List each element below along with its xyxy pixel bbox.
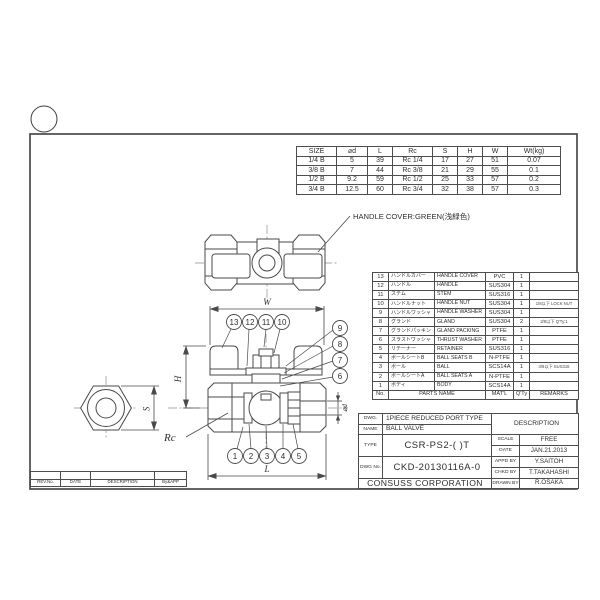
cell: 0.3 [508, 185, 561, 195]
cell: 13 [373, 273, 389, 282]
gland [252, 374, 280, 383]
cell: スラストワッシャ [389, 336, 435, 345]
cell: 17 [433, 156, 458, 166]
size-table-header: SIZE ⌀d L Rc S H W Wt(kg) [297, 147, 561, 157]
header-wt: Wt(kg) [508, 147, 561, 157]
balloon-3: 3 [260, 449, 275, 464]
cell: 3/8 B [297, 166, 337, 176]
cell: HANDLE [435, 282, 486, 291]
dwg-label: DWG. [359, 414, 383, 425]
table-row: 11ステムSTEMSUS3161 [373, 291, 579, 300]
header-rev-description: DESCRIPTION [91, 479, 155, 487]
cell: 32 [433, 185, 458, 195]
table-row: 5リテーナーRETAINERSUS3161 [373, 345, 579, 354]
cell: 0.2 [508, 175, 561, 185]
cell: 1 [514, 291, 530, 300]
cell: 59 [368, 175, 393, 185]
description-value: 1PIECE REDUCED PORT TYPE [383, 414, 492, 425]
scale-value: FREE [520, 435, 579, 446]
cell: BALL [435, 363, 486, 372]
table-row: 10ハンドルナットHANDLE NUTSUS30411/8以下 LOCK NUT [373, 300, 579, 309]
header-no: No. [373, 390, 389, 399]
cell: PTFE [486, 327, 514, 336]
cell: 1 [514, 327, 530, 336]
cell: STEM [435, 291, 486, 300]
cell: BODY [435, 381, 486, 390]
header-l: L [368, 147, 393, 157]
cell: 60 [368, 185, 393, 195]
dwg-no-value: CKD-20130116A-0 [383, 457, 492, 479]
cell: 0.1 [508, 166, 561, 176]
cell: 1 [514, 363, 530, 372]
balloon-12: 12 [243, 315, 258, 330]
ball-seat-b [280, 393, 288, 423]
balloon-11: 11 [259, 315, 274, 330]
svg-text:6: 6 [338, 372, 343, 381]
cell: 1 [514, 300, 530, 309]
description-label: DESCRIPTION [492, 414, 579, 435]
valve-front-view [168, 334, 348, 452]
cell: BALL SEATS B [435, 354, 486, 363]
drawn-by-value: R.OSAKA [520, 479, 579, 489]
dim-label-d: ⌀d [341, 404, 349, 412]
table-row: 8グランドGLANDSUS30423/8以下 Q'Ty:1 [373, 318, 579, 327]
date-value: JAN.21.2013 [520, 446, 579, 457]
cell: 1 [514, 336, 530, 345]
cell: 0.07 [508, 156, 561, 166]
header-h: H [458, 147, 483, 157]
cell: ボールシートB [389, 354, 435, 363]
cell: グランドパッキン [389, 327, 435, 336]
cell: SCS14A [486, 363, 514, 372]
table-row: TYPE CSR-PS2-( )T SCALE FREE [359, 435, 579, 446]
cell [530, 273, 579, 282]
cell: HANDLE COVER [435, 273, 486, 282]
cell: 1 [373, 381, 389, 390]
registration-circle [31, 106, 57, 132]
svg-text:5: 5 [297, 452, 302, 461]
cell: 3/4 B [297, 185, 337, 195]
cell [530, 372, 579, 381]
cell: RETAINER [435, 345, 486, 354]
table-row: 1/4 B539Rc 1/41727510.07 [297, 156, 561, 166]
svg-text:11: 11 [262, 318, 271, 327]
header-qty: Q'Ty [514, 390, 530, 399]
balloon-9: 9 [333, 321, 348, 336]
cell [530, 381, 579, 390]
cell: SUS316 [486, 345, 514, 354]
cell: グランド [389, 318, 435, 327]
handle-nut [253, 355, 279, 368]
dim-label-l: L [263, 464, 269, 474]
cell: 1/4 B [297, 156, 337, 166]
balloon-1: 1 [228, 449, 243, 464]
table-row: 9ハンドルワッシャHANDLE WASHERSUS3041 [373, 309, 579, 318]
table-row: 3ボールBALLSCS14A13/8以下 SUS316 [373, 363, 579, 372]
svg-text:10: 10 [278, 318, 287, 327]
cell: 5 [373, 345, 389, 354]
cell: 39 [368, 156, 393, 166]
cell: ボディ [389, 381, 435, 390]
cell: ハンドルワッシャ [389, 309, 435, 318]
cell [530, 282, 579, 291]
header-rev-date: DATE [61, 479, 91, 487]
cell: Rc 3/4 [393, 185, 433, 195]
header-parts-name: PARTS NAME [389, 390, 486, 399]
cell: 7 [373, 327, 389, 336]
table-row: 12ハンドルHANDLESUS3041 [373, 282, 579, 291]
cell: 1/8以下 LOCK NUT [530, 300, 579, 309]
cell [31, 472, 61, 480]
cell: SUS304 [486, 282, 514, 291]
title-block: DWG. 1PIECE REDUCED PORT TYPE DESCRIPTIO… [358, 413, 579, 489]
table-row: CONSUSS CORPORATION DRAWN BY R.OSAKA [359, 479, 579, 489]
table-row: DWG. 1PIECE REDUCED PORT TYPE DESCRIPTIO… [359, 414, 579, 425]
cell: 1 [514, 345, 530, 354]
cell [91, 472, 155, 480]
cell: 4 [373, 354, 389, 363]
cell: 1 [514, 354, 530, 363]
cell [530, 345, 579, 354]
cell: 6 [373, 336, 389, 345]
cell: 1 [514, 381, 530, 390]
cell: ハンドルカバー [389, 273, 435, 282]
date-label: DATE [492, 446, 520, 457]
type-value: CSR-PS2-( )T [383, 435, 492, 457]
balloon-5: 5 [292, 449, 307, 464]
cell: 51 [483, 156, 508, 166]
header-remarks: REMARKS [530, 390, 579, 399]
svg-text:4: 4 [281, 452, 286, 461]
parts-list-header-row: No. PARTS NAME MAT'L Q'Ty REMARKS [373, 390, 579, 399]
cell: THRUST WASHER [435, 336, 486, 345]
svg-text:2: 2 [249, 452, 254, 461]
balloon-4: 4 [276, 449, 291, 464]
chkd-by-value: T.TAKAHASHI [520, 468, 579, 479]
cell: 1 [514, 282, 530, 291]
header-rev-by: By&APP [155, 479, 187, 487]
cell: 7 [337, 166, 368, 176]
cell [530, 354, 579, 363]
cell: HANDLE WASHER [435, 309, 486, 318]
cell: 12.5 [337, 185, 368, 195]
cell: 3 [373, 363, 389, 372]
cell [61, 472, 91, 480]
cell: SCS14A [486, 381, 514, 390]
cell: HANDLE NUT [435, 300, 486, 309]
header-matl: MAT'L [486, 390, 514, 399]
balloon-6: 6 [333, 369, 348, 384]
cell: 1 [514, 273, 530, 282]
cell: ボール [389, 363, 435, 372]
table-row: 1ボディBODYSCS14A1 [373, 381, 579, 390]
drawing-sheet: HANDLE COVER:GREEN(浅緑色) [0, 0, 600, 600]
cell: 21 [433, 166, 458, 176]
cell: 2 [373, 372, 389, 381]
table-row: 3/8 B744Rc 3/82129550.1 [297, 166, 561, 176]
svg-text:9: 9 [338, 324, 343, 333]
size-table: SIZE ⌀d L Rc S H W Wt(kg) 1/4 B539Rc 1/4… [296, 146, 561, 195]
cell: 57 [483, 175, 508, 185]
header-s: S [433, 147, 458, 157]
type-label: TYPE [359, 435, 383, 457]
table-row: 6スラストワッシャTHRUST WASHERPTFE1 [373, 336, 579, 345]
dim-label-h: H [173, 375, 183, 383]
drawn-by-label: DRAWN BY [492, 479, 520, 489]
cell: ハンドルナット [389, 300, 435, 309]
handle-wing-left-top [212, 254, 250, 278]
cell: 9 [373, 309, 389, 318]
header-w: W [483, 147, 508, 157]
table-row: 4ボールシートBBALL SEATS BN-PTFE1 [373, 354, 579, 363]
cell: PTFE [486, 336, 514, 345]
table-row: 3/4 B12.560Rc 3/43238570.3 [297, 185, 561, 195]
cell [530, 291, 579, 300]
cell: ステム [389, 291, 435, 300]
cell: Rc 1/2 [393, 175, 433, 185]
svg-text:12: 12 [246, 318, 255, 327]
cell: ボールシートA [389, 372, 435, 381]
parts-list-table: 13ハンドルカバーHANDLE COVERPVC1 12ハンドルHANDLESU… [372, 272, 579, 400]
cell: 10 [373, 300, 389, 309]
balloon-2: 2 [244, 449, 259, 464]
balloon-7: 7 [333, 353, 348, 368]
dim-label-s: S [142, 406, 152, 411]
cell [530, 327, 579, 336]
table-row: DWG No. CKD-20130116A-0 APPD BY Y.SAITOH [359, 457, 579, 468]
cell: SUS304 [486, 309, 514, 318]
dim-label-rc: Rc [163, 432, 176, 444]
cell: GLAND PACKING [435, 327, 486, 336]
cell: 29 [458, 166, 483, 176]
cell: 1 [514, 309, 530, 318]
cell: 2 [514, 318, 530, 327]
balloon-13: 13 [227, 315, 242, 330]
cell: N-PTFE [486, 372, 514, 381]
cell: N-PTFE [486, 354, 514, 363]
cell: 33 [458, 175, 483, 185]
handle-cover-note: HANDLE COVER:GREEN(浅緑色) [353, 211, 470, 221]
cell: Rc 1/4 [393, 156, 433, 166]
cell [530, 309, 579, 318]
cell [530, 336, 579, 345]
header-rc: Rc [393, 147, 433, 157]
table-row: 2ボールシートABALL SEATS AN-PTFE1 [373, 372, 579, 381]
cell: 12 [373, 282, 389, 291]
cell: SUS316 [486, 291, 514, 300]
cell: Rc 3/8 [393, 166, 433, 176]
cell: 57 [483, 185, 508, 195]
cell: PVC [486, 273, 514, 282]
hex-nut-outline [81, 386, 132, 430]
scale-label: SCALE [492, 435, 520, 446]
table-row: 1/2 B9.259Rc 1/22533570.2 [297, 175, 561, 185]
balloon-8: 8 [333, 337, 348, 352]
cell: 27 [458, 156, 483, 166]
header-size: SIZE [297, 147, 337, 157]
cell: 5 [337, 156, 368, 166]
dwg-no-label: DWG No. [359, 457, 383, 479]
cell: SUS304 [486, 318, 514, 327]
svg-text:3: 3 [265, 452, 270, 461]
table-row: 13ハンドルカバーHANDLE COVERPVC1 [373, 273, 579, 282]
header-d: ⌀d [337, 147, 368, 157]
company-name: CONSUSS CORPORATION [359, 479, 492, 489]
cell: 1 [514, 372, 530, 381]
svg-text:7: 7 [338, 356, 343, 365]
revision-header-row: REV.No. DATE DESCRIPTION By&APP [31, 479, 187, 487]
cell: SUS304 [486, 300, 514, 309]
handle-wing-right-top [284, 254, 322, 278]
cell: 11 [373, 291, 389, 300]
appd-by-value: Y.SAITOH [520, 457, 579, 468]
cell: 55 [483, 166, 508, 176]
cell: 44 [368, 166, 393, 176]
svg-text:13: 13 [230, 318, 239, 327]
cell: 9.2 [337, 175, 368, 185]
dim-label-w: W [263, 297, 272, 307]
cell: 3/8以下 Q'Ty:1 [530, 318, 579, 327]
cell: BALL SEATS A [435, 372, 486, 381]
cell: ハンドル [389, 282, 435, 291]
cell: 8 [373, 318, 389, 327]
cell: 1/2 B [297, 175, 337, 185]
cell: GLAND [435, 318, 486, 327]
cell: 3/8以下 SUS316 [530, 363, 579, 372]
cell: リテーナー [389, 345, 435, 354]
cell: 25 [433, 175, 458, 185]
revision-table: REV.No. DATE DESCRIPTION By&APP [30, 471, 187, 487]
cell [155, 472, 187, 480]
table-row: 7グランドパッキンGLAND PACKINGPTFE1 [373, 327, 579, 336]
valve-top-view [195, 216, 350, 300]
cell: 38 [458, 185, 483, 195]
svg-text:8: 8 [338, 340, 343, 349]
table-row [31, 472, 187, 480]
svg-text:1: 1 [233, 452, 238, 461]
balloon-10: 10 [275, 315, 290, 330]
chkd-by-label: CHKD BY [492, 468, 520, 479]
name-value: BALL VALVE [383, 425, 492, 435]
header-rev-no: REV.No. [31, 479, 61, 487]
appd-by-label: APPD BY [492, 457, 520, 468]
name-label: NAME [359, 425, 383, 435]
